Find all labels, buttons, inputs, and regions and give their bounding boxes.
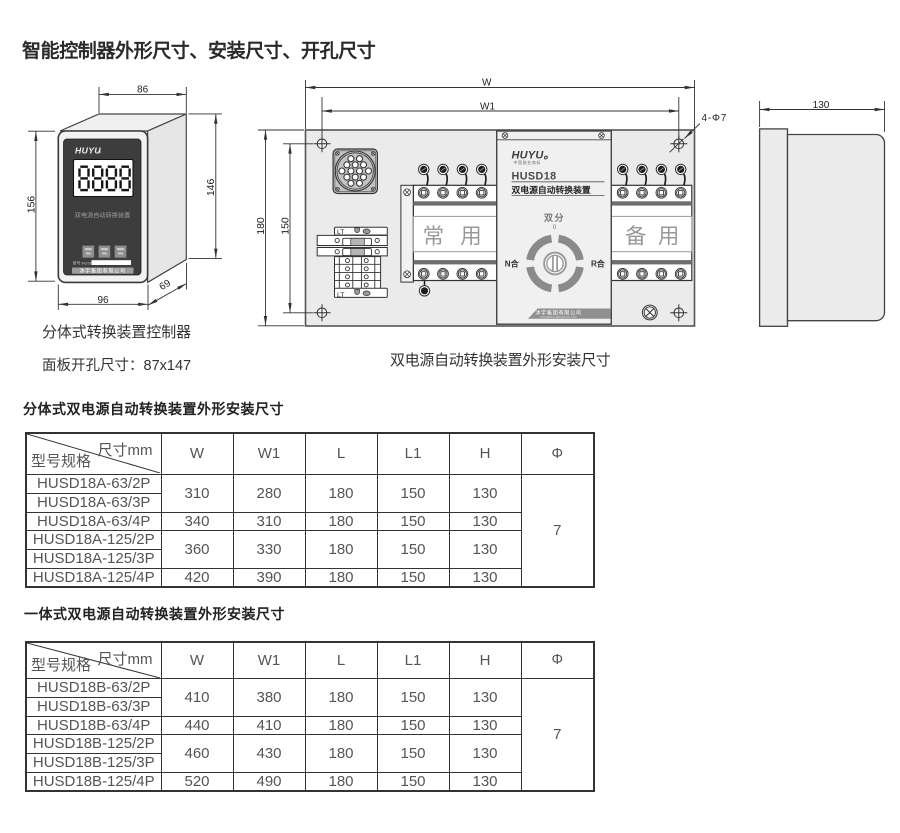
- svg-text:180: 180: [255, 217, 267, 235]
- svg-text:HUYU: HUYU: [75, 146, 101, 156]
- svg-text:双电源自动转换装置: 双电源自动转换装置: [512, 184, 591, 195]
- svg-text:双电源自动转换装置: 双电源自动转换装置: [75, 212, 131, 220]
- svg-text:146: 146: [205, 178, 217, 196]
- svg-text:130: 130: [813, 100, 830, 111]
- svg-text:沐宇集团有限公司: 沐宇集团有限公司: [79, 268, 125, 275]
- svg-text:156: 156: [26, 196, 38, 214]
- svg-text:4-Φ7: 4-Φ7: [702, 113, 728, 124]
- svg-text:96: 96: [97, 295, 109, 306]
- svg-text:LT: LT: [337, 292, 344, 299]
- svg-text:69: 69: [158, 278, 174, 293]
- svg-text:常: 常: [423, 225, 445, 249]
- svg-text:HUSHENG GROUP CO.,LTD.: HUSHENG GROUP CO.,LTD.: [540, 315, 578, 319]
- svg-text:备: 备: [625, 225, 647, 249]
- svg-text:N合: N合: [505, 259, 520, 269]
- svg-text:HUYU。: HUYU。: [512, 150, 555, 162]
- svg-text:R合: R合: [591, 259, 606, 269]
- svg-text:型号:HUSD: 型号:HUSD: [73, 260, 94, 266]
- svg-text:用: 用: [658, 225, 680, 249]
- svg-text:86: 86: [137, 84, 149, 95]
- svg-text:用: 用: [460, 225, 482, 249]
- svg-text:W: W: [482, 77, 492, 88]
- svg-text:150: 150: [279, 217, 291, 235]
- svg-text:双分: 双分: [544, 212, 565, 223]
- svg-text:中国驰名商标: 中国驰名商标: [514, 160, 542, 165]
- svg-text:0: 0: [553, 224, 557, 231]
- svg-text:HUSD18: HUSD18: [512, 171, 557, 183]
- svg-text:W1: W1: [480, 102, 495, 113]
